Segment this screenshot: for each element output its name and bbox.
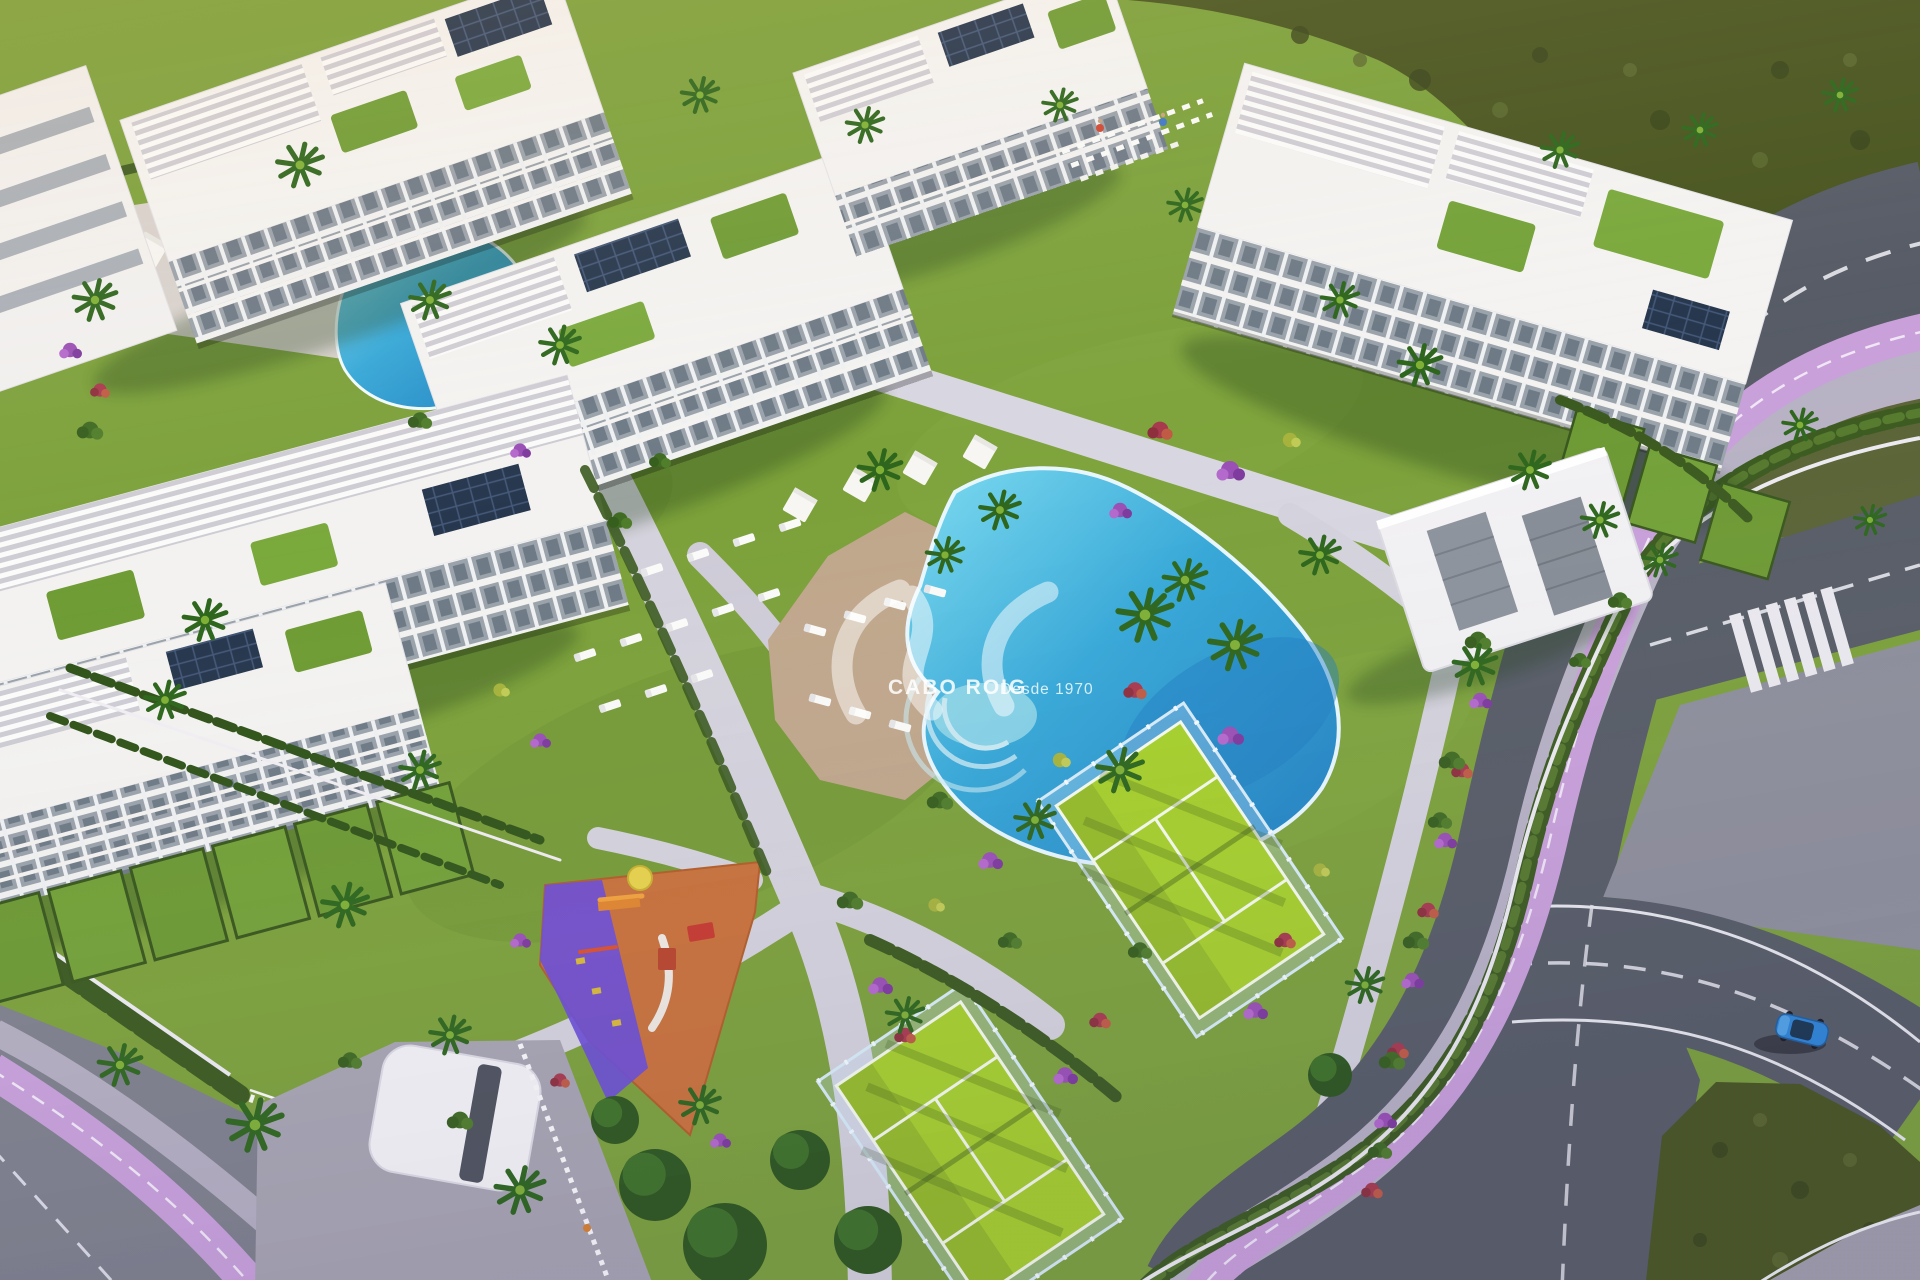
- aerial-render: CABO ROIG Desde 1970: [0, 0, 1920, 1280]
- watermark-tagline: Desde 1970: [1000, 681, 1094, 698]
- lighting-overlay: [0, 0, 1920, 1280]
